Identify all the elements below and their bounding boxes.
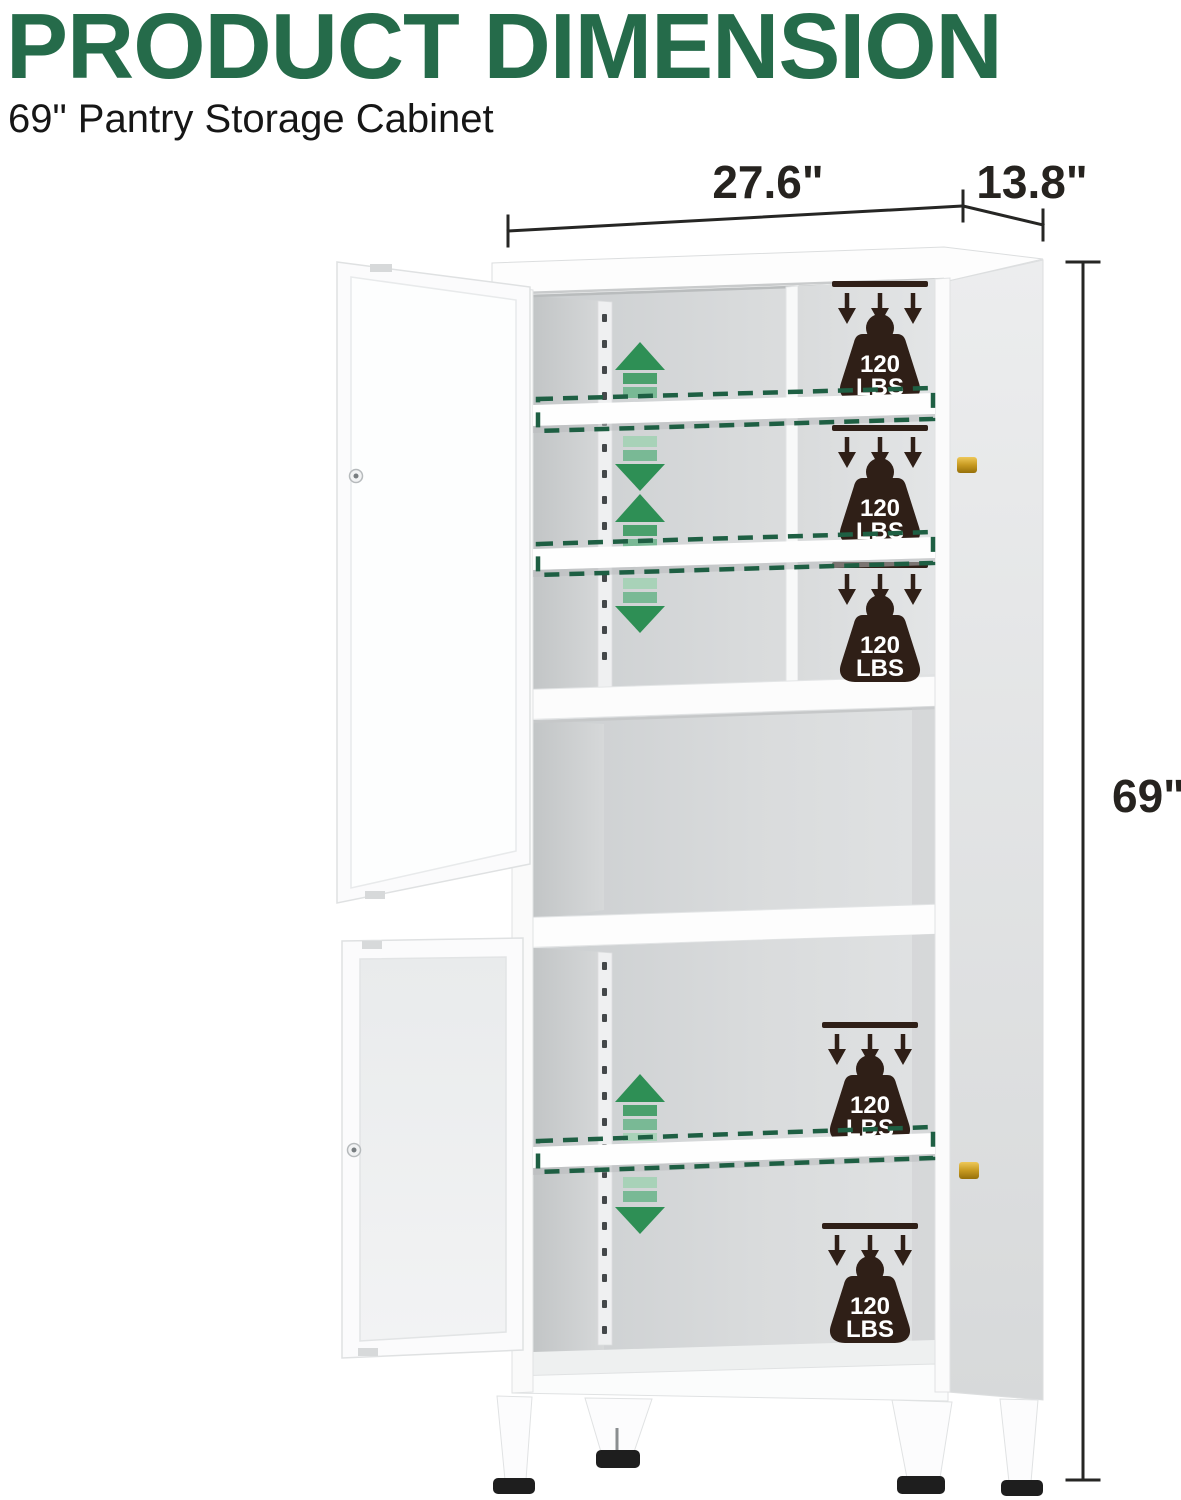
upper-glass-door: [337, 262, 530, 903]
leveling-foot: [493, 1478, 535, 1494]
middle-right-wall: [912, 706, 935, 908]
leg: [585, 1398, 652, 1468]
door-lock: [348, 1144, 361, 1157]
legs: [493, 1396, 1043, 1496]
side-panel: [948, 260, 1043, 1400]
door-hinge-tab: [365, 891, 385, 899]
door-hinge-tab: [358, 1348, 378, 1356]
upper-left-wall: [533, 296, 604, 692]
width-dimension: 27.6": [508, 156, 963, 246]
middle-compartment: [512, 676, 944, 948]
depth-dimension: 13.8": [963, 156, 1088, 240]
leg: [892, 1400, 952, 1494]
cabinet-illustration: 120 LBS 120 LBS 120 LBS: [0, 0, 1181, 1500]
door-hinge-tab: [370, 264, 392, 272]
upper-partition: [786, 286, 798, 682]
door-knob-gold: [959, 1162, 979, 1179]
leveling-foot: [897, 1476, 945, 1494]
lower-door-glass: [360, 957, 506, 1341]
badge-weight-unit: LBS: [856, 655, 904, 682]
upper-door-glass: [351, 277, 516, 888]
lower-glass-door: [342, 938, 523, 1358]
product-dimension-image: PRODUCT DIMENSION 69" Pantry Storage Cab…: [0, 0, 1181, 1500]
door-knob-gold: [957, 457, 977, 473]
door-hinge-tab: [362, 941, 382, 949]
leveling-foot: [1001, 1480, 1043, 1496]
badge-weight-unit: LBS: [846, 1316, 894, 1343]
width-label: 27.6": [712, 156, 823, 208]
leg: [1000, 1399, 1043, 1496]
leveling-foot: [596, 1450, 640, 1468]
height-dimension: 69": [1067, 262, 1181, 1480]
leg: [493, 1396, 535, 1494]
depth-label: 13.8": [976, 156, 1087, 208]
front-right-stile: [935, 278, 950, 1392]
height-label: 69": [1112, 770, 1181, 822]
door-lock: [350, 470, 363, 483]
middle-left-wall: [533, 720, 604, 920]
